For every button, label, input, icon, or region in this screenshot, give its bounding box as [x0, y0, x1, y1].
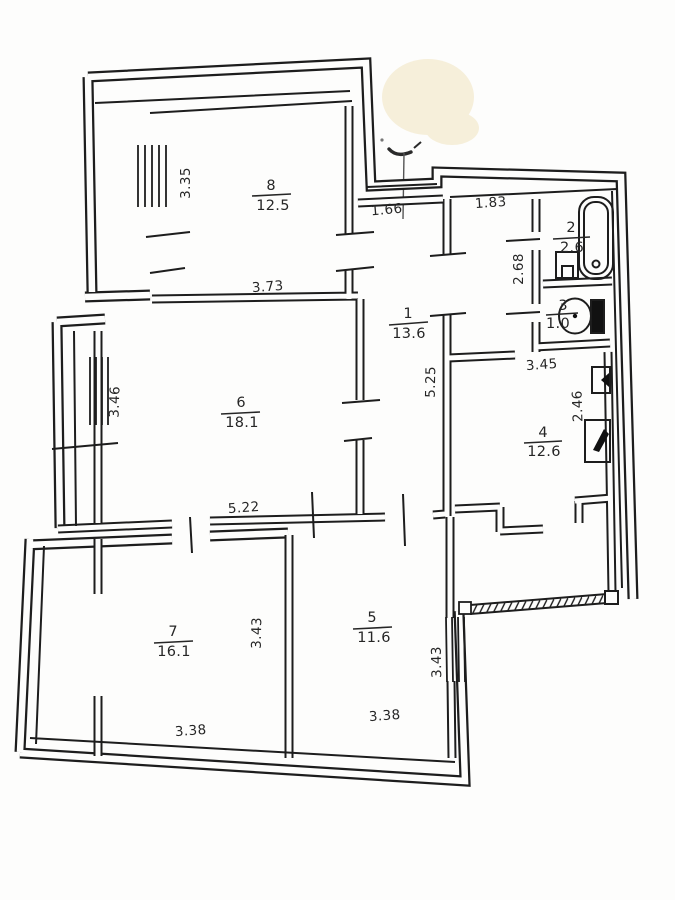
dim-2-46: 2.46	[569, 390, 586, 422]
room-4-divider	[524, 441, 562, 443]
sink-basin	[562, 266, 573, 278]
room-3-area: 1.0	[546, 316, 570, 332]
dim-3-43-room7: 3.43	[249, 617, 266, 649]
room-5-number: 5	[367, 610, 376, 626]
dim-3-38-room7: 3.38	[174, 722, 207, 740]
dim-3-38-room5: 3.38	[368, 707, 401, 725]
dim-5-25: 5.25	[423, 366, 440, 398]
ink-dot	[380, 138, 383, 141]
room-6-area: 18.1	[225, 415, 259, 431]
toilet-dot	[573, 314, 577, 318]
paper-stain-small	[425, 111, 479, 145]
room-5-area: 11.6	[357, 630, 391, 646]
ink-smudge-tick	[414, 142, 421, 148]
interior-wall-single-lines	[30, 91, 622, 762]
room-1-number: 1	[403, 306, 412, 322]
balcony-jamb-left	[459, 602, 471, 614]
room-1-area: 13.6	[392, 326, 426, 342]
dim-1-66: 1.66	[370, 201, 403, 220]
interior-wall-core	[58, 106, 612, 758]
bathtub-inner	[584, 202, 608, 274]
room-6-divider	[221, 412, 260, 414]
room-8-area: 12.5	[256, 198, 290, 214]
floor-plan-drawing: 8 12.5 1 13.6 2 2.6 3 1.0 4 12.6 5 11.6 …	[0, 0, 675, 900]
dim-2-68: 2.68	[511, 253, 527, 285]
walls-exterior	[20, 63, 633, 781]
room-7-number: 7	[168, 624, 177, 640]
balcony-glazing	[459, 591, 618, 614]
room-4-number: 4	[538, 425, 547, 441]
room-8-divider	[252, 194, 291, 196]
room-2-area: 2.6	[560, 240, 584, 256]
room-8-number: 8	[266, 178, 275, 194]
room-6-number: 6	[236, 395, 245, 411]
floor-plan-page: 8 12.5 1 13.6 2 2.6 3 1.0 4 12.6 5 11.6 …	[0, 0, 675, 900]
interior-wall-outline	[58, 106, 612, 758]
toilet-tank	[591, 300, 604, 333]
room-2-number: 2	[566, 220, 575, 236]
ink-smudge	[389, 149, 411, 154]
room-3-number: 3	[558, 298, 567, 314]
walls-interior	[30, 91, 622, 762]
room-labels: 8 12.5 1 13.6 2 2.6 3 1.0 4 12.6 5 11.6 …	[154, 178, 590, 660]
dim-3-46: 3.46	[106, 386, 123, 418]
dim-5-22: 5.22	[227, 499, 260, 517]
room-5-divider	[353, 627, 392, 629]
bathtub-drain	[593, 261, 600, 268]
window-room8-left	[138, 145, 166, 207]
dim-3-45: 3.45	[525, 356, 558, 374]
dim-1-83: 1.83	[474, 194, 507, 212]
scan-stains	[380, 59, 479, 219]
room-7-divider	[154, 641, 193, 643]
dim-3-73: 3.73	[251, 278, 284, 296]
dim-3-43-room5: 3.43	[429, 646, 446, 678]
dim-3-35: 3.35	[178, 167, 194, 199]
exterior-wall-outline	[20, 63, 633, 781]
room-1-divider	[389, 322, 428, 325]
room-4-area: 12.6	[527, 444, 561, 460]
room-7-area: 16.1	[157, 644, 191, 660]
window-hatches	[90, 145, 465, 682]
balcony-pillar-right	[605, 591, 618, 604]
